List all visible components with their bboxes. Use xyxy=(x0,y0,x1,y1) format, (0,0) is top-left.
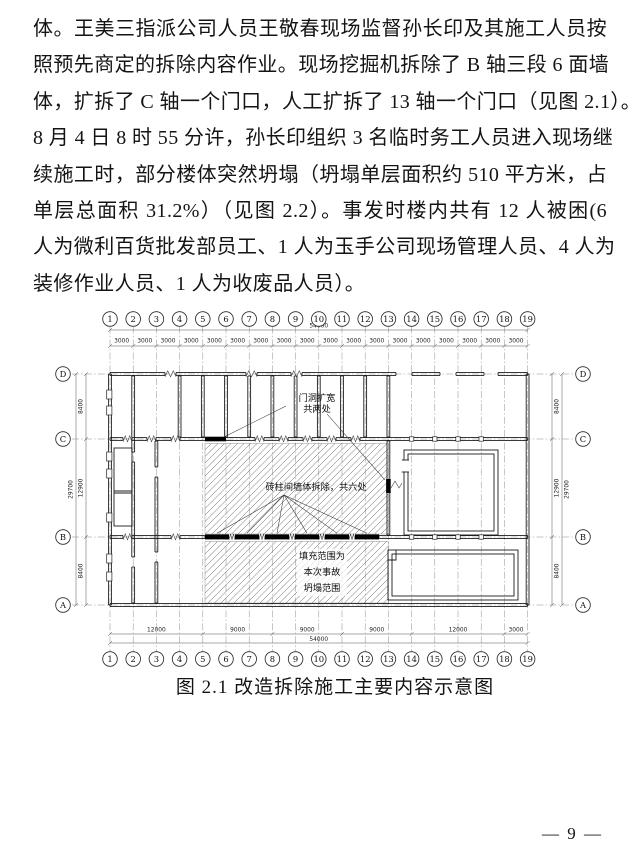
svg-text:12900: 12900 xyxy=(79,478,85,497)
svg-text:5: 5 xyxy=(200,654,205,664)
svg-text:4: 4 xyxy=(177,314,182,324)
svg-text:3000: 3000 xyxy=(509,628,524,634)
body-text-line: 单层总面积 31.2%）（见图 2.2）。事发时楼内共有 12 人被困(6 xyxy=(33,193,607,229)
body-text-line: 体，扩拆了 C 轴一个门口，人工扩拆了 13 轴一个门口（见图 2.1）。 xyxy=(33,84,607,120)
svg-text:3000: 3000 xyxy=(253,339,268,345)
body-text-line: 续施工时，部分楼体突然坍塌（坍塌单层面积约 510 平方米，占 xyxy=(33,157,607,193)
svg-text:A: A xyxy=(59,600,67,610)
svg-text:18: 18 xyxy=(499,654,510,664)
svg-text:12000: 12000 xyxy=(147,628,166,634)
body-text-line: 人为微利百货批发部员工、1 人为玉手公司现场管理人员、4 人为 xyxy=(33,229,607,265)
svg-text:5: 5 xyxy=(200,314,205,324)
svg-text:14: 14 xyxy=(406,654,417,664)
svg-text:13: 13 xyxy=(383,654,394,664)
floor-plan-drawing: 5400030003000300030003000300030003000300… xyxy=(28,302,608,674)
right-room-lower xyxy=(388,550,518,600)
dimensions-left: 840012900840029700 xyxy=(69,372,89,607)
svg-text:13: 13 xyxy=(383,314,394,324)
svg-text:砖柱间墙体拆除，共六处: 砖柱间墙体拆除，共六处 xyxy=(265,481,366,492)
svg-text:8: 8 xyxy=(270,314,275,324)
svg-text:9000: 9000 xyxy=(230,628,245,634)
svg-text:7: 7 xyxy=(247,314,252,324)
svg-text:9: 9 xyxy=(293,654,298,664)
svg-text:3000: 3000 xyxy=(323,339,338,345)
svg-text:C: C xyxy=(60,434,66,444)
svg-text:19: 19 xyxy=(522,314,533,324)
svg-text:18: 18 xyxy=(499,314,510,324)
svg-text:3000: 3000 xyxy=(230,339,245,345)
svg-text:填充范围为: 填充范围为 xyxy=(299,550,345,561)
svg-text:16: 16 xyxy=(453,314,464,324)
document-page: 体。王美三指派公司人员王敬春现场监督孙长印及其施工人员按照预先商定的拆除内容作业… xyxy=(0,0,637,859)
svg-text:3: 3 xyxy=(154,654,159,664)
svg-text:A: A xyxy=(579,600,587,610)
svg-text:3000: 3000 xyxy=(277,339,292,345)
svg-text:门洞扩宽: 门洞扩宽 xyxy=(299,392,336,403)
svg-text:2: 2 xyxy=(131,654,136,664)
column-markers xyxy=(409,437,483,539)
figure-2-1: 5400030003000300030003000300030003000300… xyxy=(28,302,608,674)
body-text-line: 装修作业人员、1 人为收废品人员）。 xyxy=(33,266,607,302)
svg-text:3000: 3000 xyxy=(485,339,500,345)
body-text: 体。王美三指派公司人员王敬春现场监督孙长印及其施工人员按照预先商定的拆除内容作业… xyxy=(33,11,607,302)
svg-text:7: 7 xyxy=(247,654,252,664)
svg-text:D: D xyxy=(60,369,67,379)
svg-text:10: 10 xyxy=(313,654,324,664)
svg-text:19: 19 xyxy=(522,654,533,664)
svg-text:3000: 3000 xyxy=(416,339,431,345)
page-number: — 9 — xyxy=(542,824,603,844)
svg-text:3000: 3000 xyxy=(184,339,199,345)
svg-text:29700: 29700 xyxy=(69,480,75,499)
svg-text:3000: 3000 xyxy=(114,339,129,345)
svg-text:3: 3 xyxy=(154,314,159,324)
svg-text:15: 15 xyxy=(429,654,440,664)
svg-text:12900: 12900 xyxy=(555,478,561,497)
svg-text:3000: 3000 xyxy=(439,339,454,345)
svg-text:3000: 3000 xyxy=(369,339,384,345)
svg-text:54000: 54000 xyxy=(309,637,328,643)
svg-text:3000: 3000 xyxy=(300,339,315,345)
svg-text:3000: 3000 xyxy=(462,339,477,345)
svg-text:3000: 3000 xyxy=(137,339,152,345)
svg-text:坍塌范围: 坍塌范围 xyxy=(304,582,341,593)
svg-text:12: 12 xyxy=(360,314,371,324)
svg-text:6: 6 xyxy=(223,314,228,324)
body-text-line: 体。王美三指派公司人员王敬春现场监督孙长印及其施工人员按 xyxy=(33,11,607,47)
svg-text:9000: 9000 xyxy=(369,628,384,634)
svg-text:9: 9 xyxy=(293,314,298,324)
svg-text:12000: 12000 xyxy=(449,628,468,634)
svg-text:10: 10 xyxy=(313,314,324,324)
annotation-collapse-fill: 填充范围为本次事故坍塌范围 xyxy=(297,549,347,596)
svg-text:11: 11 xyxy=(337,314,348,324)
svg-text:17: 17 xyxy=(476,654,487,664)
svg-text:8400: 8400 xyxy=(555,399,561,414)
left-rooms xyxy=(114,448,132,526)
svg-text:16: 16 xyxy=(453,654,464,664)
svg-text:本次事故: 本次事故 xyxy=(304,566,341,577)
dimensions-right: 840012900840029700 xyxy=(550,372,571,607)
svg-text:8400: 8400 xyxy=(79,399,85,414)
collapse-hatch-region xyxy=(205,444,388,604)
svg-text:3000: 3000 xyxy=(509,339,524,345)
svg-text:3000: 3000 xyxy=(207,339,222,345)
svg-text:17: 17 xyxy=(476,314,487,324)
svg-text:12: 12 xyxy=(360,654,371,664)
svg-text:C: C xyxy=(580,434,586,444)
svg-text:2: 2 xyxy=(131,314,136,324)
svg-text:15: 15 xyxy=(429,314,440,324)
svg-text:B: B xyxy=(580,532,586,542)
body-text-line: 8 月 4 日 8 时 55 分许，孙长印组织 3 名临时务工人员进入现场继 xyxy=(33,120,607,156)
svg-text:8400: 8400 xyxy=(79,563,85,578)
svg-text:6: 6 xyxy=(223,654,228,664)
svg-text:3000: 3000 xyxy=(393,339,408,345)
svg-text:9000: 9000 xyxy=(300,628,315,634)
figure-caption: 图 2.1 改造拆除施工主要内容示意图 xyxy=(60,672,610,699)
svg-text:4: 4 xyxy=(177,654,182,664)
svg-text:3000: 3000 xyxy=(346,339,361,345)
body-text-line: 照预先商定的拆除内容作业。现场挖掘机拆除了 B 轴三段 6 面墙 xyxy=(33,47,607,83)
svg-text:D: D xyxy=(580,369,587,379)
right-room-upper xyxy=(402,450,498,535)
svg-text:3000: 3000 xyxy=(161,339,176,345)
svg-text:8: 8 xyxy=(270,654,275,664)
svg-text:11: 11 xyxy=(337,654,348,664)
svg-text:1: 1 xyxy=(107,314,112,324)
svg-text:1: 1 xyxy=(107,654,112,664)
svg-text:B: B xyxy=(60,532,66,542)
svg-text:14: 14 xyxy=(406,314,417,324)
svg-text:8400: 8400 xyxy=(555,563,561,578)
svg-text:29700: 29700 xyxy=(565,480,571,499)
svg-text:共两处: 共两处 xyxy=(303,403,331,414)
